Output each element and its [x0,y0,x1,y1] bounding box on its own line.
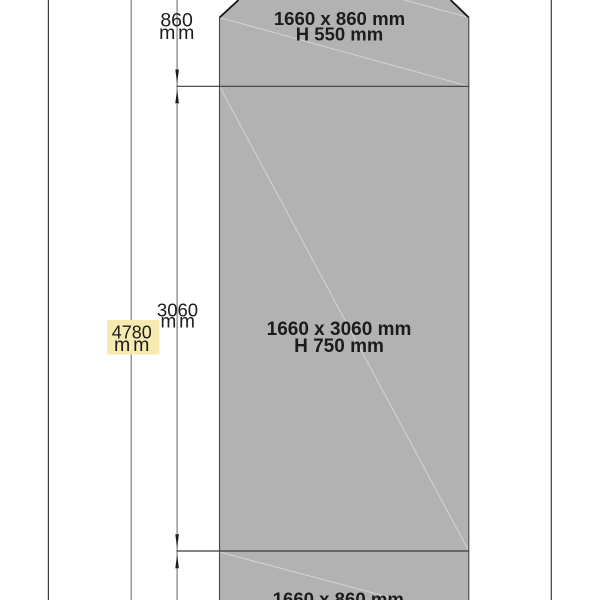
svg-text:H 750 mm: H 750 mm [294,336,384,357]
svg-text:mm: mm [160,312,197,333]
svg-text:1660 x 860 mm: 1660 x 860 mm [273,589,404,600]
svg-text:mm: mm [159,22,197,44]
svg-text:mm: mm [114,334,152,356]
svg-text:H 550 mm: H 550 mm [296,23,383,44]
